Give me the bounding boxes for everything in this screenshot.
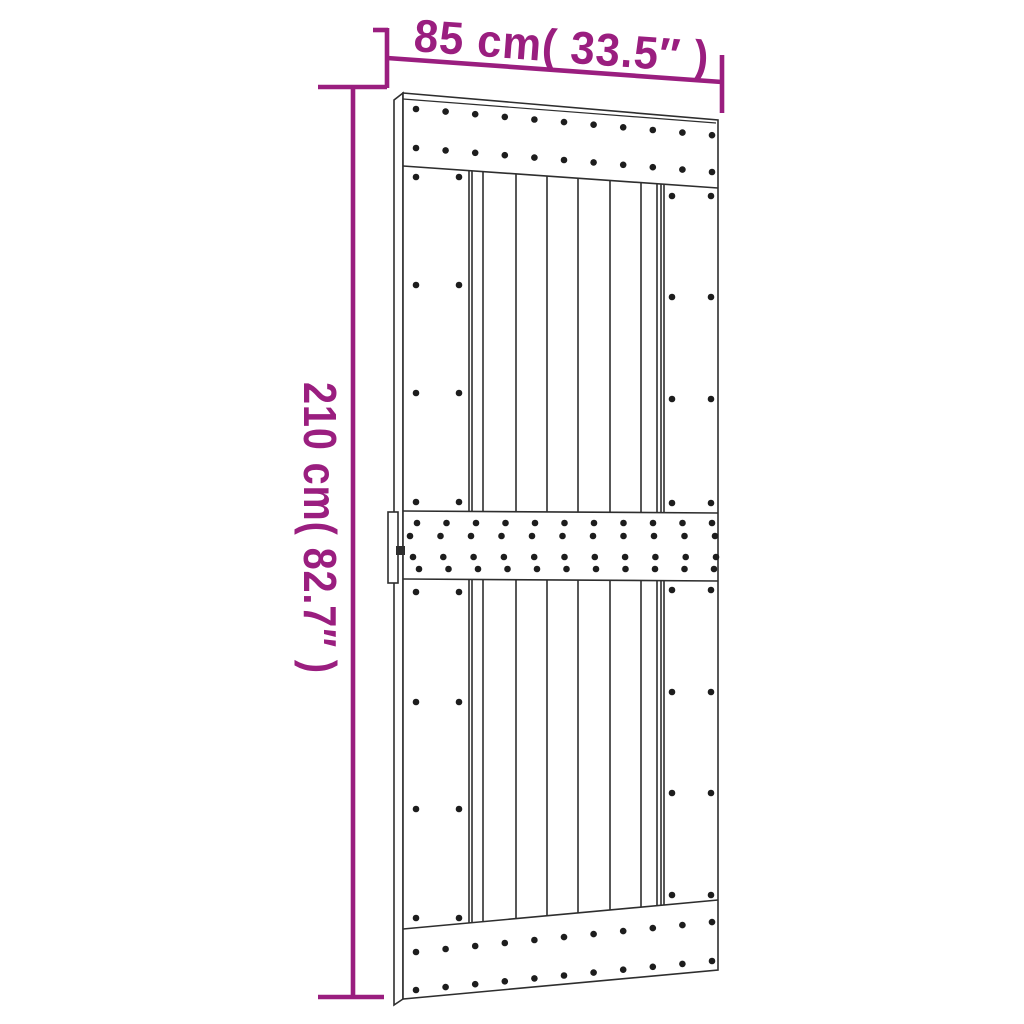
nail-dot <box>416 566 423 573</box>
nail-dot <box>679 129 686 136</box>
nail-dot <box>561 157 568 164</box>
nail-dot <box>651 533 658 540</box>
nail-dot <box>442 147 449 154</box>
nail-dot <box>561 972 568 979</box>
nail-dot <box>456 174 463 181</box>
nail-dot <box>669 790 676 797</box>
nail-dot <box>414 520 421 527</box>
nail-dot <box>561 520 568 527</box>
nail-dot <box>456 699 463 706</box>
nail-dot <box>708 790 715 797</box>
nail-dot <box>650 925 657 932</box>
nail-dot <box>442 946 449 953</box>
nail-dot <box>681 533 688 540</box>
nail-dot <box>502 114 509 121</box>
nail-dot <box>712 533 719 540</box>
handle-mount <box>396 546 405 555</box>
nail-dot <box>620 533 627 540</box>
nail-dot <box>473 520 480 527</box>
nail-dot <box>532 520 539 527</box>
nail-dot <box>413 949 420 956</box>
nail-dot <box>679 166 686 173</box>
nail-dot <box>437 533 444 540</box>
nail-dot <box>413 915 420 922</box>
door-front-face <box>403 93 718 999</box>
nail-dot <box>531 937 538 944</box>
nail-dot <box>468 533 475 540</box>
nail-dot <box>669 294 676 301</box>
nail-dot <box>502 152 509 159</box>
nail-dot <box>709 132 716 139</box>
nail-dot <box>713 554 720 561</box>
nail-dot <box>504 566 511 573</box>
nail-dot <box>669 396 676 403</box>
nail-dot <box>531 554 538 561</box>
door-drawing <box>388 93 719 1005</box>
nail-dot <box>413 390 420 397</box>
nail-dot <box>456 499 463 506</box>
nail-dot <box>679 961 686 968</box>
nail-dot <box>620 124 627 131</box>
nail-dot <box>622 566 629 573</box>
nail-dot <box>407 533 414 540</box>
nail-dot <box>708 689 715 696</box>
nail-dot <box>708 587 715 594</box>
nail-dot <box>413 589 420 596</box>
nail-dot <box>561 119 568 126</box>
nail-dot <box>620 928 627 935</box>
nail-dot <box>708 396 715 403</box>
nail-dot <box>456 589 463 596</box>
nail-dot <box>593 566 600 573</box>
nail-dot <box>590 931 597 938</box>
nail-dot <box>563 566 570 573</box>
nail-dot <box>475 566 482 573</box>
nail-dot <box>529 533 536 540</box>
nail-dot <box>669 892 676 899</box>
nail-dot <box>442 108 449 115</box>
nail-dot <box>590 533 597 540</box>
nail-dot <box>708 294 715 301</box>
nail-dot <box>681 566 688 573</box>
nail-dot <box>470 554 477 561</box>
nail-dot <box>709 169 716 176</box>
nail-dot <box>620 520 627 527</box>
nail-dot <box>620 162 627 169</box>
nail-dot <box>709 520 716 527</box>
dimension-diagram-canvas: 85 cm( 33.5″ ) 210 cm( 82.7″ ) <box>0 0 1024 1024</box>
nail-dot <box>472 943 479 950</box>
nail-dot <box>708 892 715 899</box>
nail-dot <box>531 116 538 123</box>
nail-dot <box>531 975 538 982</box>
nail-dot <box>669 587 676 594</box>
nail-dot <box>708 193 715 200</box>
nail-dot <box>456 282 463 289</box>
nail-dot <box>561 554 568 561</box>
nail-dot <box>669 193 676 200</box>
nail-dot <box>652 554 659 561</box>
nail-dot <box>413 499 420 506</box>
nail-dot <box>456 806 463 813</box>
nail-dot <box>622 554 629 561</box>
nail-dot <box>682 554 689 561</box>
nail-dot <box>650 127 657 134</box>
nail-dot <box>501 554 508 561</box>
nail-dot <box>669 689 676 696</box>
nail-dot <box>669 500 676 507</box>
nail-dot <box>413 699 420 706</box>
nail-dot <box>442 984 449 991</box>
nail-dot <box>498 533 505 540</box>
nail-dot <box>472 150 479 157</box>
nail-dot <box>443 520 450 527</box>
nail-dot <box>709 958 716 965</box>
nail-dot <box>592 554 599 561</box>
nail-dot <box>502 520 509 527</box>
nail-dot <box>620 966 627 973</box>
nail-dot <box>413 174 420 181</box>
nail-dot <box>591 520 598 527</box>
nail-dot <box>413 987 420 994</box>
nail-dot <box>410 554 417 561</box>
nail-dot <box>413 806 420 813</box>
nail-dot <box>456 390 463 397</box>
height-dimension-label: 210 cm( 82.7″ ) <box>294 382 346 674</box>
nail-dot <box>456 915 463 922</box>
nail-dot <box>711 566 718 573</box>
nail-dot <box>679 922 686 929</box>
product-dimension-diagram: 85 cm( 33.5″ ) 210 cm( 82.7″ ) <box>0 0 1024 1024</box>
nail-dot <box>590 121 597 128</box>
nail-dot <box>413 282 420 289</box>
nail-dot <box>590 969 597 976</box>
nail-dot <box>679 520 686 527</box>
nail-dot <box>472 981 479 988</box>
nail-dot <box>708 500 715 507</box>
nail-dot <box>590 159 597 166</box>
nail-dot <box>652 566 659 573</box>
nail-dot <box>534 566 541 573</box>
width-dimension-label: 85 cm( 33.5″ ) <box>412 9 711 83</box>
nail-dot <box>502 978 509 985</box>
nail-dot <box>709 919 716 926</box>
nail-dot <box>413 106 420 113</box>
nail-dot <box>502 940 509 947</box>
nail-dot <box>531 154 538 161</box>
height-dimension: 210 cm( 82.7″ ) <box>294 87 387 997</box>
nail-dot <box>472 111 479 118</box>
nail-dot <box>413 145 420 152</box>
nail-dot <box>561 934 568 941</box>
nail-dot <box>650 164 657 171</box>
nail-dot <box>559 533 566 540</box>
nail-dot <box>445 566 452 573</box>
nail-dot <box>440 554 447 561</box>
nail-dot <box>650 520 657 527</box>
nail-dot <box>650 964 657 971</box>
